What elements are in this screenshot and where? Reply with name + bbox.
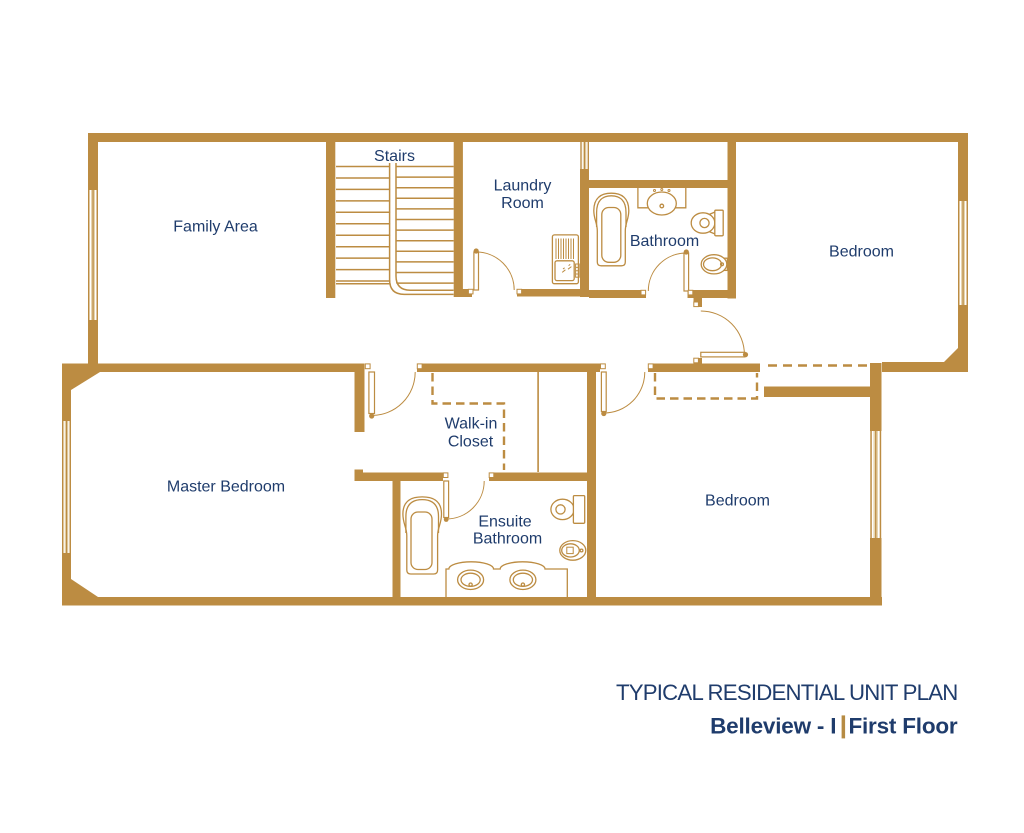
svg-text:Stairs: Stairs — [374, 148, 415, 165]
svg-text:Master Bedroom: Master Bedroom — [167, 479, 285, 496]
svg-text:Bathroom: Bathroom — [473, 531, 542, 548]
svg-text:Belleview - I|First Floor: Belleview - I|First Floor — [710, 714, 958, 739]
svg-text:Room: Room — [501, 195, 544, 212]
svg-text:Walk-in: Walk-in — [445, 416, 498, 433]
svg-text:Ensuite: Ensuite — [478, 514, 531, 531]
svg-text:Closet: Closet — [448, 434, 494, 451]
svg-text:Bedroom: Bedroom — [705, 493, 770, 510]
svg-text:Bedroom: Bedroom — [829, 244, 894, 261]
svg-text:Bathroom: Bathroom — [630, 233, 699, 250]
svg-text:TYPICAL RESIDENTIAL UNIT PLAN: TYPICAL RESIDENTIAL UNIT PLAN — [616, 680, 958, 705]
svg-text:Family Area: Family Area — [173, 219, 258, 236]
svg-text:Laundry: Laundry — [494, 178, 552, 195]
